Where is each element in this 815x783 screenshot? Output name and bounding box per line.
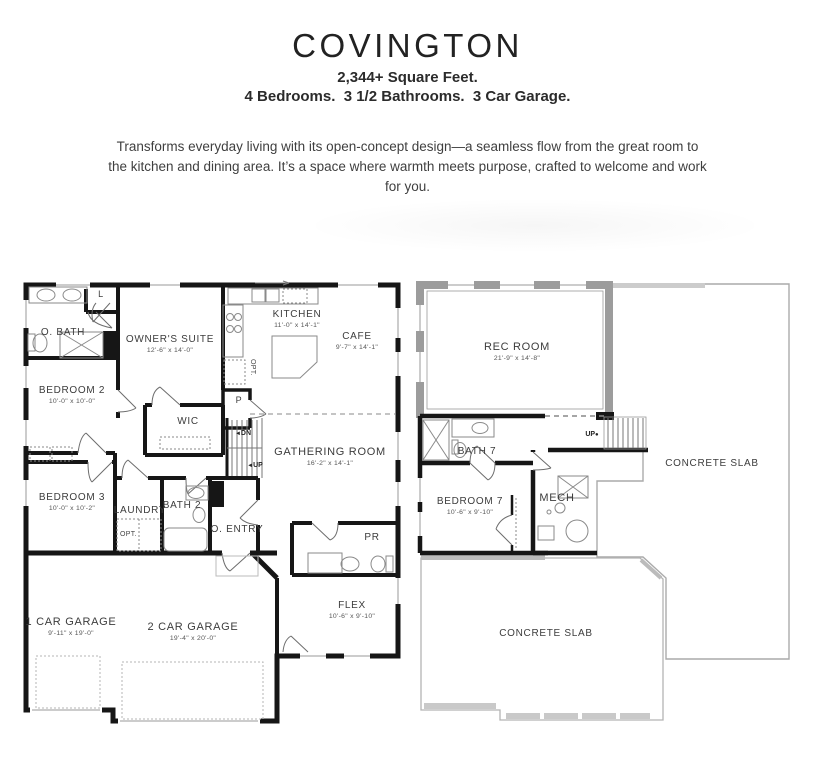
floorplan-sheet: COVINGTON 2,344+ Square Feet. 4 Bedrooms… bbox=[0, 0, 815, 783]
stairs-up2-label: UP● bbox=[585, 431, 598, 438]
opt-fridge-label: OPT. bbox=[249, 359, 256, 376]
chase-owners-bath bbox=[103, 331, 119, 358]
dot-icon: ● bbox=[595, 432, 599, 438]
stairs-dn-label: ◄DN bbox=[235, 430, 251, 437]
plan-area: O. BATH L OWNER'S SUITE12'-6" x 14'-0" K… bbox=[0, 0, 815, 783]
stairs-up-label: ◄UP bbox=[247, 462, 263, 469]
floorplan-drawing bbox=[0, 200, 815, 783]
chase-entry bbox=[210, 481, 224, 507]
stair-wall-post bbox=[596, 412, 614, 420]
rec-room-walls bbox=[416, 281, 613, 418]
opt-laundry-label: OPT. bbox=[120, 531, 137, 538]
second-floor-fixtures bbox=[423, 419, 588, 550]
second-floor-stairs bbox=[604, 417, 646, 449]
first-floor-partitions bbox=[26, 285, 398, 656]
